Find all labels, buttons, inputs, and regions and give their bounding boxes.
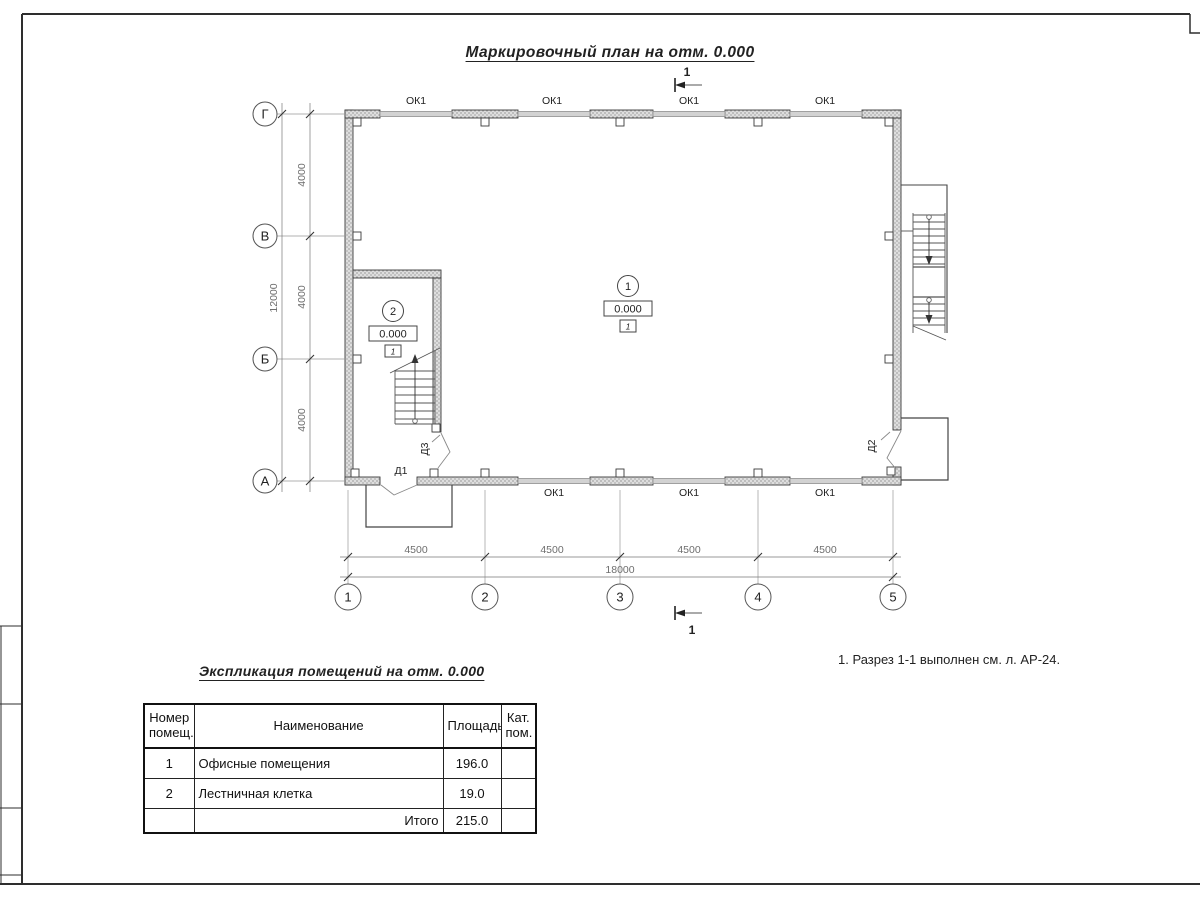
window-label: ОК1 — [679, 95, 699, 107]
exterior-walls — [345, 110, 901, 485]
total-area-cell: 215.0 — [443, 809, 501, 834]
dim-4000-1: 4000 — [296, 163, 308, 187]
col-header-number: Номер помещ. — [144, 704, 194, 748]
door-label-d2: Д2 — [866, 439, 878, 452]
porch-d1 — [366, 485, 452, 527]
axis-label-g: Г — [261, 107, 268, 122]
section-number-top: 1 — [684, 65, 691, 79]
room-elevation: 0.000 — [614, 304, 642, 316]
room-category-cell — [501, 748, 536, 779]
floor-type: 1 — [626, 322, 631, 332]
section-mark-top: 1 — [675, 65, 702, 92]
opening-labels: ОК1 ОК1 ОК1 ОК1 ОК1 ОК1 ОК1 Д1 Д2 Д3 — [395, 95, 878, 499]
table-header-row: Номер помещ. Наименование Площадь Кат. п… — [144, 704, 536, 748]
room-elevation: 0.000 — [379, 329, 407, 341]
axis-label-3: 3 — [616, 590, 623, 605]
empty-cell — [501, 809, 536, 834]
total-label-cell: Итого — [194, 809, 443, 834]
door-label-d3: Д3 — [419, 442, 431, 455]
table-row: 1 Офисные помещения 196.0 — [144, 748, 536, 779]
left-dimensions — [277, 103, 345, 492]
window-label: ОК1 — [679, 487, 699, 499]
section-number-bottom: 1 — [689, 623, 696, 637]
porch-d2 — [901, 418, 948, 480]
window-label: ОК1 — [406, 95, 426, 107]
dim-4000-2: 4000 — [296, 285, 308, 309]
room-name-cell: Офисные помещения — [194, 748, 443, 779]
room-number: 2 — [390, 306, 396, 318]
axis-label-v: В — [261, 229, 270, 244]
room-marker-2: 2 0.000 1 — [369, 301, 417, 358]
schedule-title: Экспликация помещений на отм. 0.000 — [199, 663, 484, 679]
dim-4500-1: 4500 — [404, 544, 428, 556]
stair-exterior — [901, 185, 947, 340]
door-d1-leaf — [381, 485, 417, 495]
door-d3-leaf — [438, 433, 450, 468]
axis-label-2: 2 — [481, 590, 488, 605]
floor-type: 1 — [391, 347, 396, 357]
col-header-area: Площадь — [443, 704, 501, 748]
axis-label-4: 4 — [754, 590, 761, 605]
room-marker-1: 1 0.000 1 — [604, 276, 652, 333]
section-mark-bottom: 1 — [675, 606, 702, 637]
dim-4500-2: 4500 — [540, 544, 564, 556]
dim-4000-3: 4000 — [296, 408, 308, 432]
table-total-row: Итого 215.0 — [144, 809, 536, 834]
window-openings — [380, 112, 862, 484]
col-header-category: Кат. пом. — [501, 704, 536, 748]
dim-4500-4: 4500 — [813, 544, 837, 556]
frame-left-strip — [0, 626, 22, 884]
plan-title: Маркировочный план на отм. 0.000 — [440, 44, 780, 62]
door-label-d1: Д1 — [395, 465, 408, 477]
room-schedule-table: Номер помещ. Наименование Площадь Кат. п… — [143, 703, 537, 834]
axis-label-a: А — [261, 474, 270, 489]
room-category-cell — [501, 779, 536, 809]
room-number-cell: 2 — [144, 779, 194, 809]
window-label: ОК1 — [542, 95, 562, 107]
dim-4500-3: 4500 — [677, 544, 701, 556]
dim-12000: 12000 — [268, 283, 280, 312]
window-label: ОК1 — [544, 487, 564, 499]
room-area-cell: 196.0 — [443, 748, 501, 779]
window-label: ОК1 — [815, 487, 835, 499]
stair-up-arrow — [412, 354, 419, 363]
table-row: 2 Лестничная клетка 19.0 — [144, 779, 536, 809]
room-area-cell: 19.0 — [443, 779, 501, 809]
room-number-cell: 1 — [144, 748, 194, 779]
axis-label-1: 1 — [344, 590, 351, 605]
note-text: 1. Разрез 1-1 выполнен см. л. АР-24. — [838, 652, 1060, 667]
axis-label-b: Б — [261, 352, 270, 367]
axis-bubbles-bottom: 1 2 3 4 5 — [335, 584, 906, 610]
drawing-sheet: Г В Б А 1 2 3 4 5 4000 4000 4000 12000 4… — [0, 0, 1200, 900]
dim-18000: 18000 — [605, 564, 634, 576]
axis-label-5: 5 — [889, 590, 896, 605]
section-arrow-icon — [675, 610, 685, 617]
door-d2-leaf — [887, 431, 901, 469]
window-label: ОК1 — [815, 95, 835, 107]
col-header-name: Наименование — [194, 704, 443, 748]
stair-down-arrow-2 — [926, 315, 933, 324]
room-number: 1 — [625, 281, 631, 293]
section-arrow-icon — [675, 82, 685, 89]
room-name-cell: Лестничная клетка — [194, 779, 443, 809]
empty-cell — [144, 809, 194, 834]
stair-interior — [390, 348, 440, 424]
porches — [366, 418, 948, 527]
